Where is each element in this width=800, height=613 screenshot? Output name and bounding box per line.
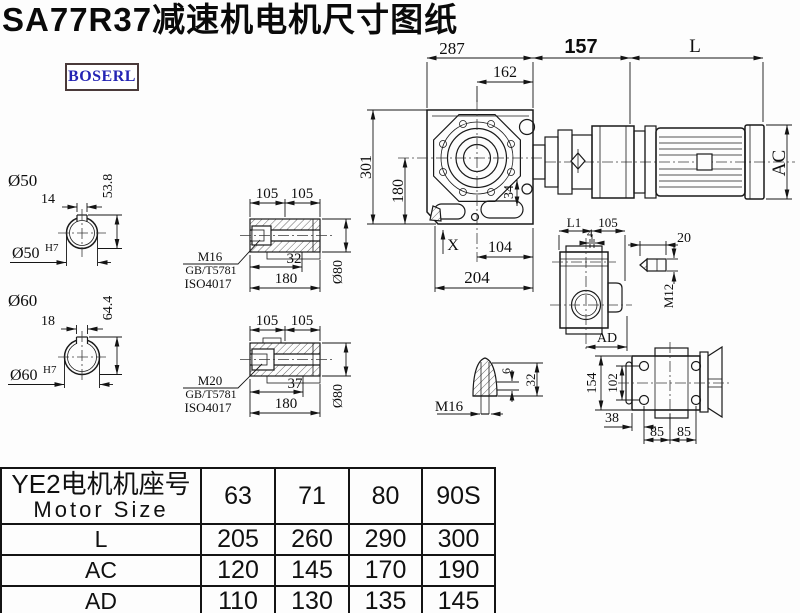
L-63: 205 — [201, 524, 275, 555]
dim-32-plug: 32 — [523, 374, 538, 387]
AC-90S: 190 — [422, 555, 495, 586]
sleeve1-thread-label: M16 — [198, 249, 223, 264]
bore50-title: Ø50 — [8, 171, 37, 190]
motor-size-label-cn: YE2电机机座号 — [2, 471, 200, 498]
dim-85-left: 85 — [650, 425, 664, 440]
dim-102: 102 — [605, 373, 620, 393]
sleeve-m20-view: 105 105 37 180 Ø80 M20 GB/T5781 ISO4017 — [183, 313, 351, 417]
sleeve1-dim-dia80: Ø80 — [331, 260, 346, 284]
dim-AD: AD — [597, 331, 617, 346]
dim-38: 38 — [605, 411, 619, 426]
AC-80: 170 — [349, 555, 422, 586]
dim-L1: L1 — [567, 215, 581, 230]
dim-180: 180 — [390, 179, 407, 203]
dim-18: 18 — [41, 314, 55, 329]
dim-64-4: 64.4 — [101, 296, 116, 321]
row-label-L: L — [1, 524, 201, 555]
key-detail: 20 M12 — [628, 231, 691, 308]
dim-20: 20 — [677, 231, 691, 246]
sleeve1-standard-gb: GB/T5781 — [185, 263, 236, 277]
sleeve1-dim-105-left: 105 — [256, 186, 279, 202]
sleeve2-dim-37: 37 — [288, 376, 304, 392]
dim-M16-plug: M16 — [435, 399, 464, 415]
dim-157: 157 — [564, 36, 597, 58]
bore60-title: Ø60 — [8, 291, 37, 310]
dim-154: 154 — [585, 373, 600, 394]
sleeve2-standard-gb: GB/T5781 — [185, 387, 236, 401]
dim-AC: AC — [769, 150, 790, 176]
bore50-dia-label: Ø50 — [12, 245, 40, 262]
main-view-motor — [533, 125, 795, 199]
col-80: 80 — [349, 468, 422, 524]
dim-204: 204 — [464, 268, 490, 287]
bore-50-view: Ø50 14 53.8 Ø50 H7 — [8, 171, 122, 266]
AC-71: 145 — [275, 555, 349, 586]
dim-34: 34 — [502, 185, 517, 199]
bore60-dia-label: Ø60 — [10, 367, 38, 384]
sleeve2-dim-105-right: 105 — [291, 313, 314, 329]
L-90S: 300 — [422, 524, 495, 555]
table-header-row: YE2电机机座号 Motor Size 63 71 80 90S — [1, 468, 495, 524]
sleeve1-dim-180: 180 — [275, 271, 298, 287]
col-71: 71 — [275, 468, 349, 524]
dim-L: L — [689, 36, 701, 57]
AC-63: 120 — [201, 555, 275, 586]
sleeve1-standard-iso: ISO4017 — [185, 276, 232, 291]
AD-63: 110 — [201, 586, 275, 613]
AD-80: 135 — [349, 586, 422, 613]
breather-plug-detail: M16 6 32 — [435, 358, 543, 415]
dim-105-side: 105 — [598, 215, 618, 230]
sleeve-m16-view: 105 105 32 180 Ø80 M16 GB/T5781 ISO4017 — [183, 186, 351, 292]
dim-104: 104 — [488, 239, 512, 256]
L-80: 290 — [349, 524, 422, 555]
main-view-gearbox — [398, 100, 545, 262]
table-row-AD: AD 110 130 135 145 — [1, 586, 495, 613]
dim-53-8: 53.8 — [101, 174, 116, 199]
row-label-AD: AD — [1, 586, 201, 613]
sleeve2-standard-iso: ISO4017 — [185, 400, 232, 415]
dim-287: 287 — [439, 39, 465, 58]
dim-M12: M12 — [661, 284, 676, 309]
sleeve1-dim-105-right: 105 — [291, 186, 314, 202]
AD-71: 130 — [275, 586, 349, 613]
oil-plug — [430, 206, 441, 221]
bottom-view: 154 102 38 85 85 — [585, 342, 730, 444]
dim-X: X — [447, 237, 459, 254]
sleeve2-dim-105-left: 105 — [256, 313, 279, 329]
bore60-tolerance: H7 — [43, 364, 57, 376]
motor-size-table: YE2电机机座号 Motor Size 63 71 80 90S L 205 2… — [0, 467, 496, 613]
col-63: 63 — [201, 468, 275, 524]
table-header-motor-size: YE2电机机座号 Motor Size — [1, 468, 201, 524]
dim-301: 301 — [358, 155, 375, 179]
sleeve2-dim-180: 180 — [275, 396, 298, 412]
table-row-L: L 205 260 290 300 — [1, 524, 495, 555]
dim-4: 4 — [587, 226, 593, 240]
motor-size-label-en: Motor Size — [2, 498, 200, 521]
drawing-page: SA77R37减速机电机尺寸图纸 BOSERL — [0, 0, 800, 613]
bore-60-view: Ø60 18 64.4 Ø60 H7 — [8, 291, 122, 388]
dim-162: 162 — [493, 64, 517, 81]
AD-90S: 145 — [422, 586, 495, 613]
technical-drawing: 287 162 157 L 301 180 34 X 104 204 AC — [0, 0, 800, 465]
dim-85-right: 85 — [677, 425, 691, 440]
dim-14: 14 — [41, 192, 55, 207]
col-90S: 90S — [422, 468, 495, 524]
sleeve2-dim-dia80: Ø80 — [331, 384, 346, 408]
sleeve1-dim-32: 32 — [287, 251, 302, 267]
table-row-AC: AC 120 145 170 190 — [1, 555, 495, 586]
row-label-AC: AC — [1, 555, 201, 586]
side-view: L1 105 4 AD — [550, 215, 632, 352]
bore50-tolerance: H7 — [45, 242, 59, 254]
sleeve2-thread-label: M20 — [198, 373, 223, 388]
L-71: 260 — [275, 524, 349, 555]
dim-6: 6 — [499, 368, 513, 374]
